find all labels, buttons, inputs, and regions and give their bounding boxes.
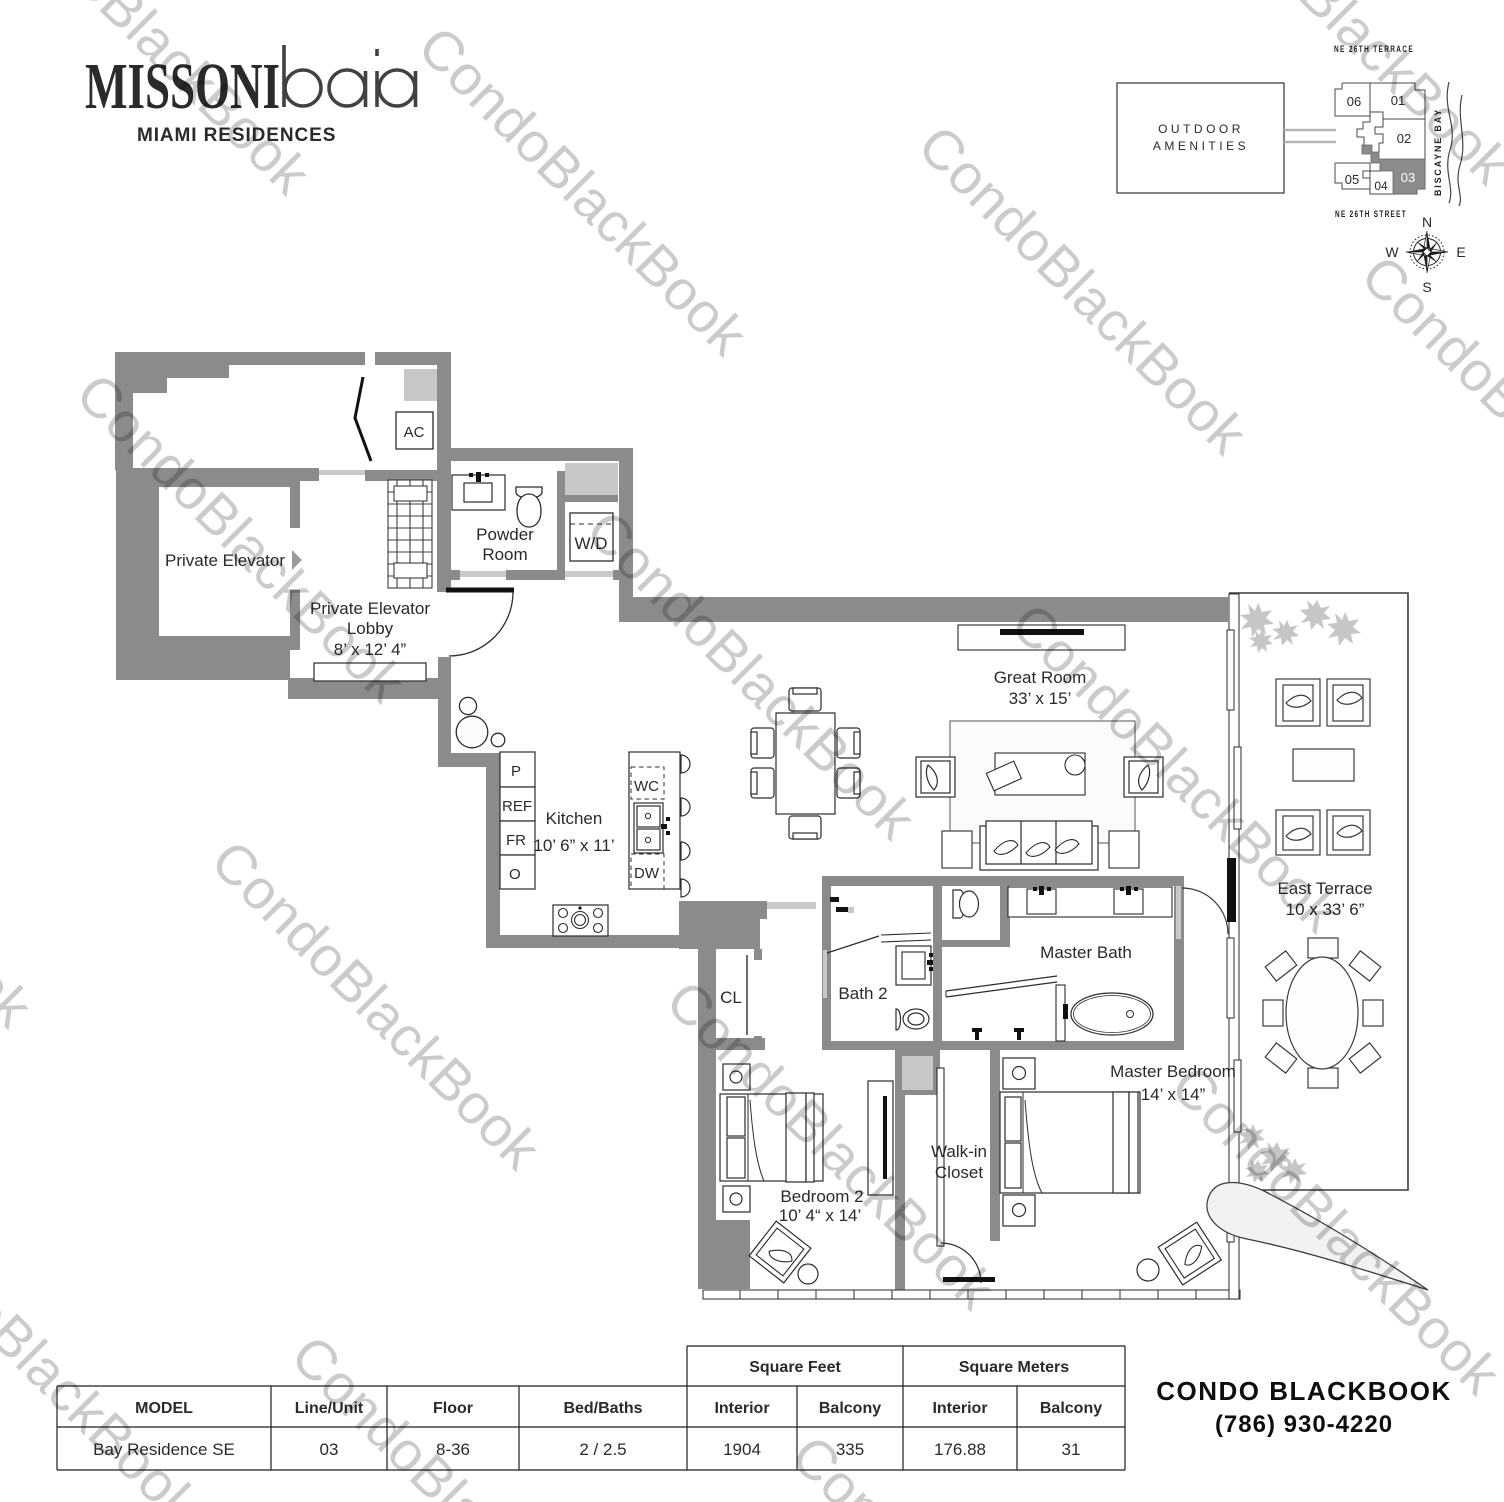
svg-text:Interior: Interior [714, 1400, 769, 1417]
svg-text:04: 04 [1374, 179, 1388, 193]
svg-text:06: 06 [1347, 94, 1361, 109]
svg-text:Balcony: Balcony [1040, 1400, 1102, 1417]
svg-text:MODEL: MODEL [135, 1400, 193, 1417]
svg-text:AMENITIES: AMENITIES [1153, 139, 1249, 153]
svg-text:03: 03 [320, 1440, 339, 1459]
svg-text:(786) 930-4220: (786) 930-4220 [1215, 1411, 1393, 1438]
svg-text:Master Bath: Master Bath [1040, 943, 1132, 962]
svg-text:Balcony: Balcony [819, 1400, 881, 1417]
svg-text:Bed/Baths: Bed/Baths [563, 1400, 642, 1417]
svg-text:E: E [1456, 244, 1465, 260]
svg-text:02: 02 [1397, 131, 1411, 146]
svg-text:REF: REF [502, 798, 532, 815]
svg-text:Square Meters: Square Meters [959, 1359, 1069, 1376]
svg-text:Square Feet: Square Feet [749, 1359, 841, 1376]
svg-text:FR: FR [506, 832, 526, 849]
svg-text:Interior: Interior [932, 1400, 987, 1417]
svg-text:WC: WC [634, 778, 659, 795]
svg-text:P: P [511, 763, 521, 780]
svg-text:DW: DW [634, 865, 660, 882]
svg-text:Kitchen: Kitchen [546, 809, 603, 828]
svg-text:OUTDOOR: OUTDOOR [1158, 122, 1244, 136]
svg-text:05: 05 [1345, 172, 1359, 187]
svg-text:10’ 4“ x 14’: 10’ 4“ x 14’ [779, 1206, 862, 1225]
svg-text:Closet: Closet [935, 1163, 983, 1182]
svg-text:2 / 2.5: 2 / 2.5 [579, 1440, 626, 1459]
svg-text:Floor: Floor [433, 1400, 473, 1417]
svg-text:Powder: Powder [476, 525, 534, 544]
svg-text:176.88: 176.88 [934, 1440, 986, 1459]
svg-text:Bath 2: Bath 2 [838, 984, 887, 1003]
svg-text:31: 31 [1062, 1440, 1081, 1459]
svg-text:N: N [1422, 214, 1432, 230]
svg-text:03: 03 [1401, 170, 1415, 185]
svg-text:Room: Room [482, 545, 527, 564]
svg-text:NE 26TH STREET: NE 26TH STREET [1335, 209, 1407, 220]
svg-text:10’ 6” x 11’: 10’ 6” x 11’ [533, 836, 614, 855]
svg-text:O: O [509, 866, 521, 883]
svg-text:Walk-in: Walk-in [931, 1142, 987, 1161]
svg-text:1904: 1904 [723, 1440, 761, 1459]
svg-text:AC: AC [404, 424, 425, 441]
svg-text:CONDO BLACKBOOK: CONDO BLACKBOOK [1156, 1376, 1452, 1406]
